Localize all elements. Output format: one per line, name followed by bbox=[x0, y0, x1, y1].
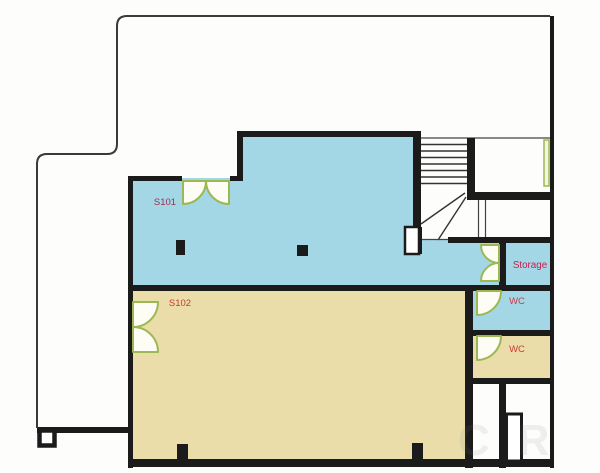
wall-upper-right-room-bottom bbox=[467, 192, 554, 200]
room-label-s101: S101 bbox=[154, 197, 176, 208]
column bbox=[412, 443, 423, 459]
wall-storage-west bbox=[499, 243, 506, 287]
room-fill-s101-main bbox=[133, 178, 421, 288]
room-label-wc-upper: WC bbox=[509, 296, 525, 307]
stair-treads bbox=[421, 145, 467, 184]
column bbox=[297, 245, 308, 256]
floor-plan-canvas: S101 S102 Storage WC WC CR bbox=[0, 0, 600, 473]
wall-east-outer bbox=[550, 16, 554, 468]
wall-stair-divider bbox=[467, 138, 475, 194]
exterior-door-strip bbox=[544, 140, 549, 186]
doorway-recess bbox=[405, 227, 419, 254]
wall-upper-east bbox=[413, 131, 421, 229]
exterior-pillar bbox=[40, 431, 55, 446]
watermark-text: CR bbox=[458, 416, 578, 465]
room-fill-s102 bbox=[131, 288, 465, 462]
room-fill-s101-upper bbox=[237, 134, 421, 181]
wall-wc-lower-bottom bbox=[465, 378, 554, 384]
column bbox=[177, 444, 188, 460]
room-label-wc-lower: WC bbox=[509, 344, 525, 355]
room-label-storage: Storage bbox=[513, 260, 548, 271]
room-label-s102: S102 bbox=[169, 298, 191, 309]
wall-s101-top-left bbox=[128, 176, 182, 181]
floor-plan-drawing: S101 S102 Storage WC WC CR bbox=[0, 0, 600, 473]
wall-storage-top bbox=[448, 237, 554, 243]
wall-upper-west bbox=[237, 131, 243, 181]
column bbox=[176, 240, 185, 255]
wall-upper-top bbox=[237, 131, 421, 137]
